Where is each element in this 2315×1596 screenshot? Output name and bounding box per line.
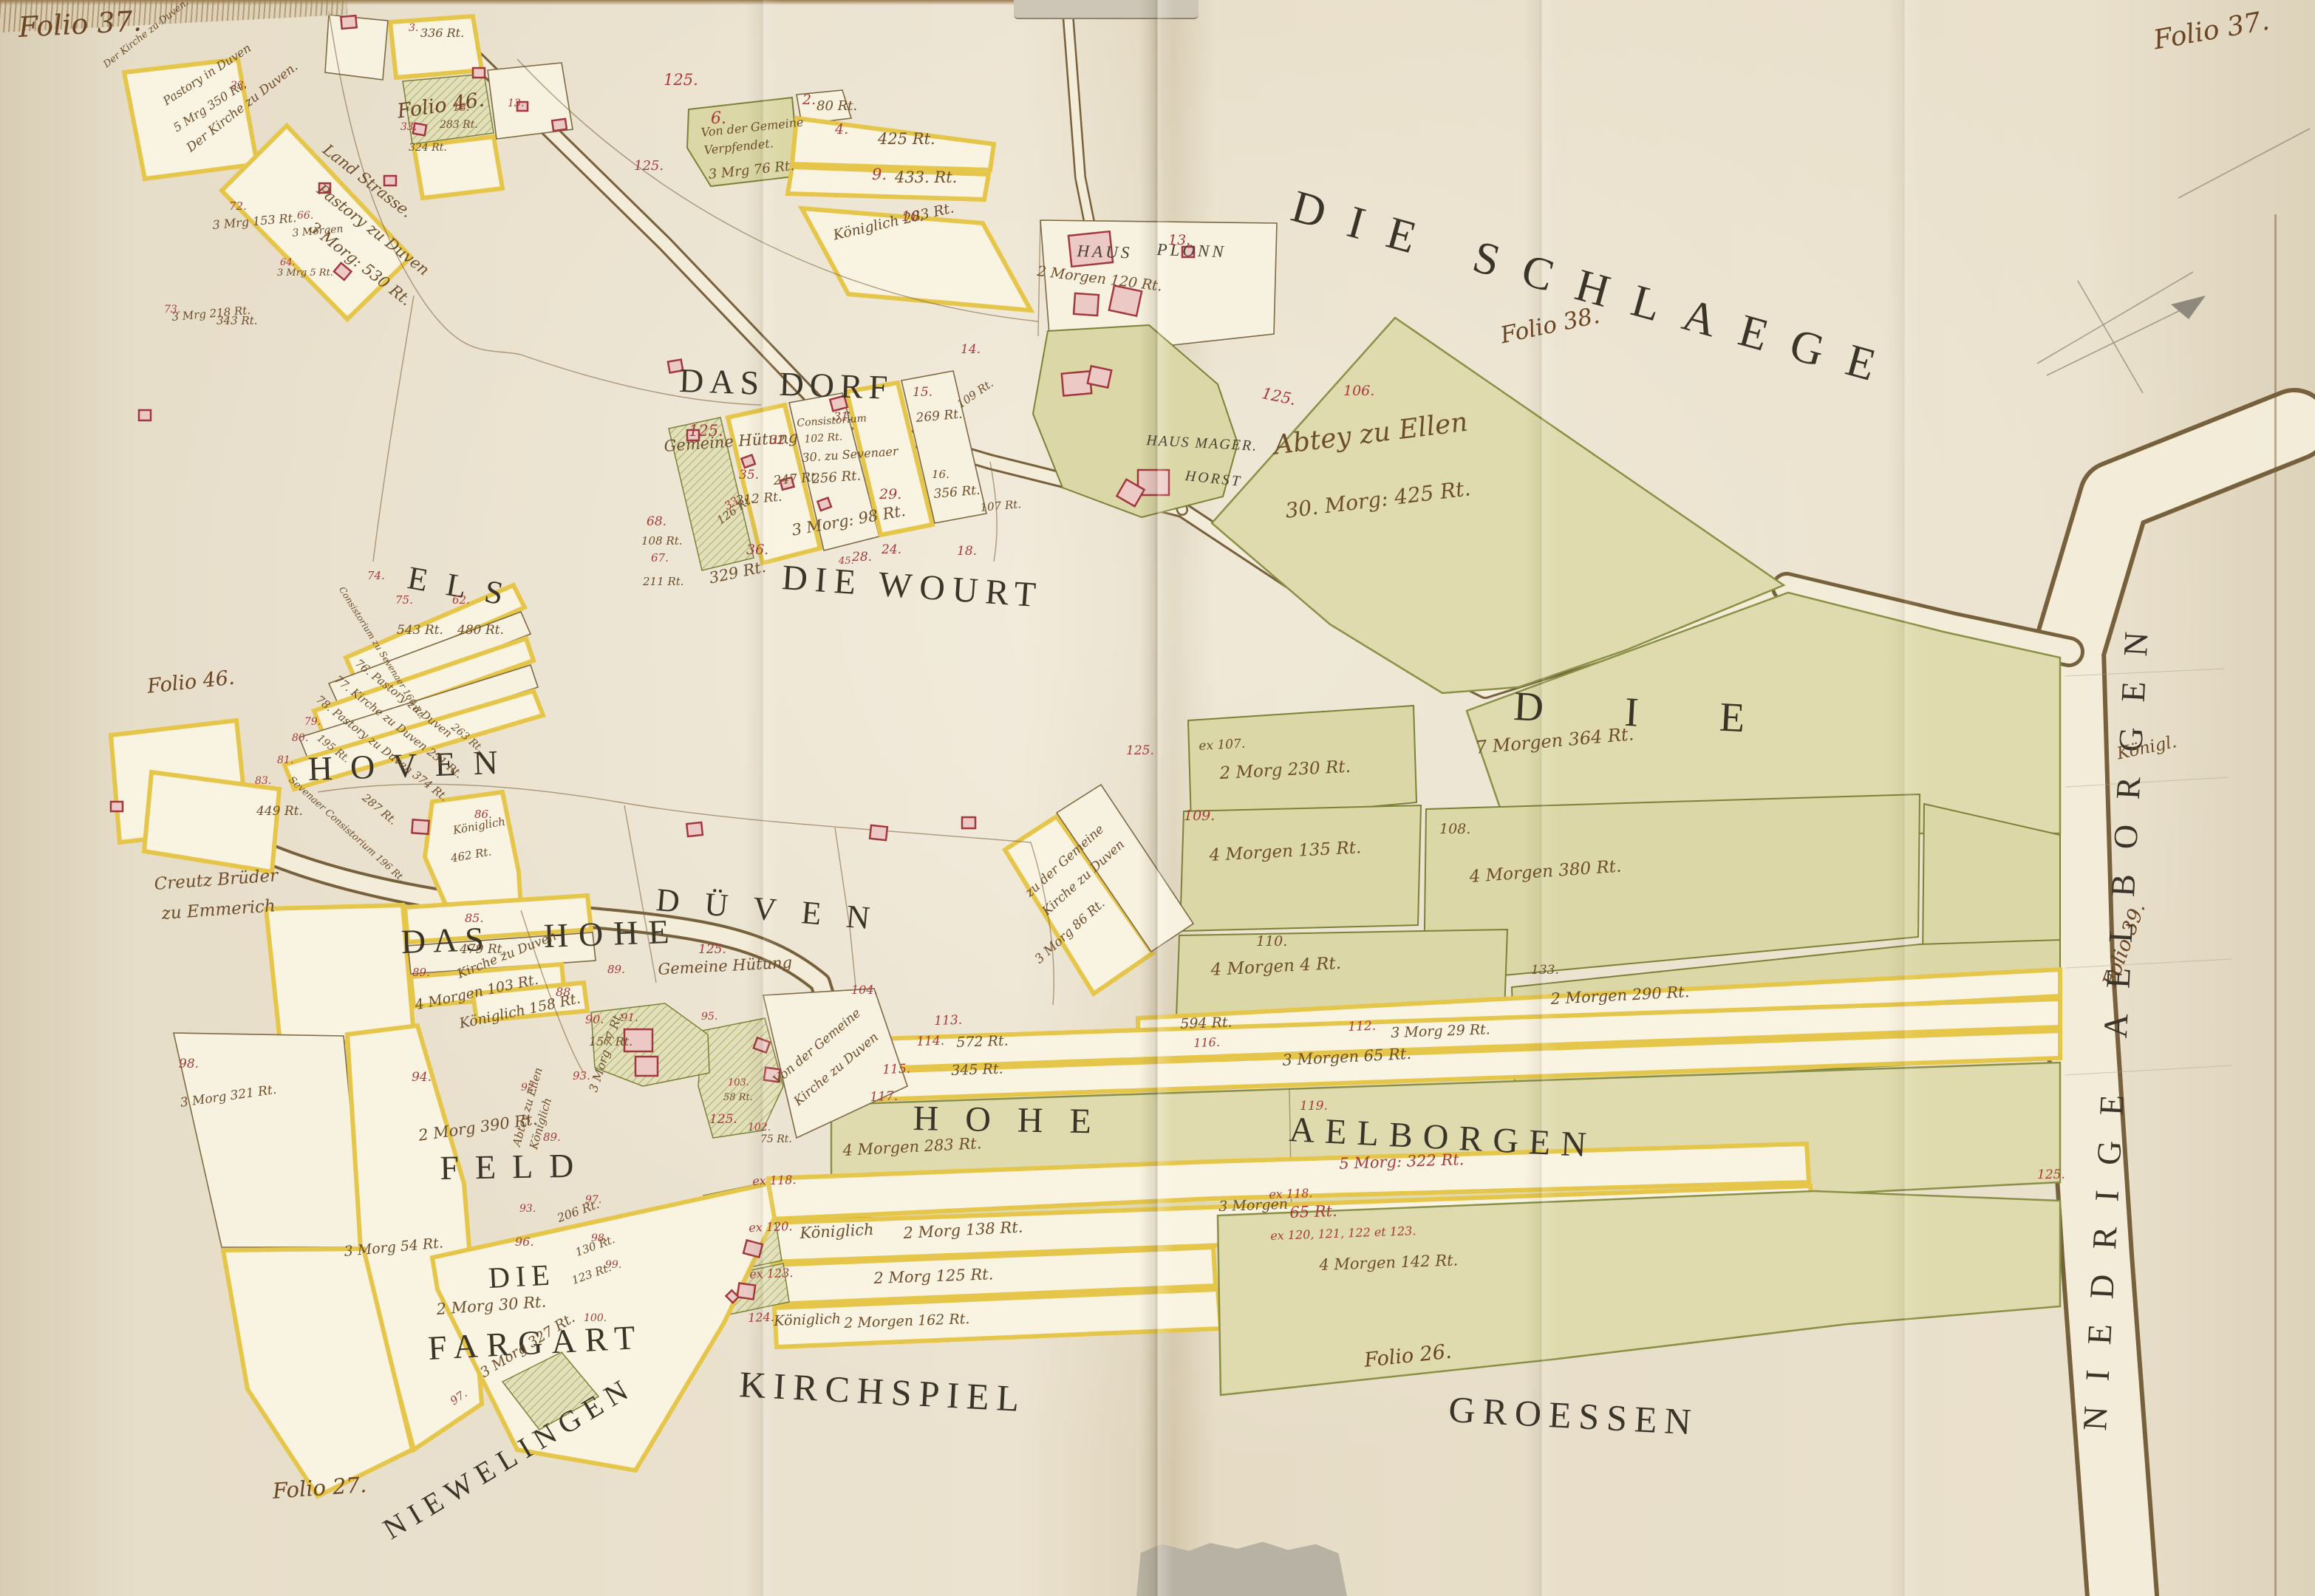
parcel-note: 32.	[769, 434, 789, 447]
parcel-note: 23.	[231, 81, 247, 91]
parcel-note: 211 Rt.	[643, 576, 684, 587]
parcel-note: 108 Rt.	[641, 536, 683, 547]
parcel-note: 81.	[277, 755, 293, 765]
parcel-note: 2 Morg 125 Rt.	[873, 1266, 994, 1286]
parcel-note: 2.	[802, 93, 816, 107]
parcel-note: 64.	[280, 258, 296, 267]
parcel-note: 35.	[739, 469, 759, 482]
parcel-note: 106.	[1343, 384, 1374, 398]
parcel-note: 98.	[591, 1233, 607, 1244]
fold-crease	[745, 0, 779, 1596]
parcel-note: ex 120.	[749, 1221, 793, 1234]
region-title-die-fargart: DIE	[488, 1260, 556, 1293]
parcel-note: 109.	[1184, 809, 1215, 823]
parcel-note: 100.	[584, 1313, 607, 1323]
parcel-note: 94.	[412, 1071, 432, 1084]
parcel-note: 110.	[1256, 935, 1287, 949]
folio-mark: Folio 27.	[272, 1474, 367, 1502]
cadastral-map-sheet: Folio 37. Folio 37. Folio 46. Folio 46. …	[0, 0, 2315, 1596]
parcel-note: 9.	[872, 167, 887, 183]
parcel-note: 133.	[1531, 964, 1559, 977]
page-right-edge	[2274, 214, 2277, 1596]
parcel-note: 65 Rt.	[1289, 1204, 1337, 1221]
parcel-note: 3.	[409, 23, 418, 33]
parcel-note: 18.	[957, 545, 977, 558]
parcel-note: 72.	[229, 201, 247, 212]
parcel-note: 3 Mrg 5 Rt.	[277, 268, 333, 278]
parcel-note: 102.	[748, 1122, 771, 1133]
parcel-note: 93.	[519, 1204, 536, 1214]
parcel-note: 93.	[573, 1071, 590, 1082]
parcel-note: 543 Rt.	[397, 624, 443, 637]
parcel-note: 97.	[585, 1195, 601, 1205]
parcel-note: 75 Rt.	[760, 1134, 792, 1145]
parcel-note: 66.	[297, 211, 313, 221]
parcel-note: 116.	[1193, 1037, 1220, 1049]
parcel-note: Königlich	[774, 1312, 841, 1329]
parcel-note: ex 123.	[749, 1267, 794, 1280]
parcel-note: 13.	[1168, 233, 1190, 248]
parcel-note: 102 Rt.	[804, 432, 843, 445]
parcel-note: 125.	[709, 1114, 737, 1126]
parcel-note: 103.	[728, 1078, 749, 1088]
parcel-note: 114.	[916, 1035, 944, 1048]
parcel-note: 13.	[508, 98, 524, 109]
parcel-note: 75.	[395, 595, 413, 606]
parcel-note: 449 Rt.	[256, 805, 303, 818]
parcel-note: 68.	[647, 516, 666, 528]
parcel-note: 62.	[452, 595, 470, 606]
parcel-note: 125.	[634, 160, 664, 173]
parcel-note: 480 Rt.	[457, 624, 504, 637]
parcel-note: 95.	[701, 1012, 717, 1022]
parcel-note: ex 118.	[752, 1174, 797, 1187]
parcel-note: 124.	[748, 1312, 774, 1324]
parcel-note: 89.	[543, 1132, 561, 1143]
parcel-note: 594 Rt.	[1180, 1016, 1232, 1031]
parcel-note: 58 Rt.	[723, 1093, 753, 1102]
parcel-note: 117.	[870, 1091, 898, 1104]
parcel-note: 83.	[255, 776, 271, 786]
parcel-note: 3 Morg 29 Rt.	[1391, 1023, 1490, 1040]
parcel-note: 336 Rt.	[420, 27, 464, 39]
sheet-top-edge	[0, 0, 1153, 5]
north-arrow-icon	[2037, 272, 2206, 393]
folio-mark: Folio 37.	[18, 7, 143, 41]
parcel-note: 16.	[932, 469, 949, 480]
parcel-note: 5 Morg: 322 Rt.	[1339, 1152, 1465, 1172]
fold-crease	[1524, 0, 1558, 1596]
parcel-note: 45.	[839, 556, 854, 566]
region-title-hohe-right: HOHE	[913, 1101, 1118, 1140]
parcel-note: 4.	[835, 123, 848, 137]
parcel-note: 15.	[913, 386, 933, 399]
region-title-feld: FELD	[440, 1148, 590, 1185]
parcel-note: 98.	[179, 1058, 199, 1071]
parcel-note: ex 107.	[1199, 738, 1246, 753]
parcel-note: 3 Morgen	[1218, 1198, 1288, 1214]
parcel-note: 80 Rt.	[816, 100, 857, 113]
parcel-note: 112.	[1348, 1020, 1376, 1034]
parcel-note: 125.	[698, 944, 726, 956]
parcel-note: 85.	[465, 913, 483, 924]
parcel-note: 125.	[2037, 1169, 2065, 1181]
parcel-note: 572 Rt.	[956, 1034, 1009, 1050]
parcel-note: 24.	[882, 544, 901, 556]
parcel-note: 125.	[664, 72, 698, 88]
parcel-note: 113.	[934, 1014, 962, 1028]
parcel-note: 29.	[879, 488, 901, 502]
parcel-note: 125.	[1126, 745, 1154, 757]
parcel-note: 89.	[607, 964, 625, 975]
parcel-note: 433. Rt.	[895, 170, 957, 185]
parcel-note: 343 Rt.	[217, 316, 258, 327]
parcel-note: 18.	[453, 103, 469, 113]
parcel-note: 90.	[585, 1014, 604, 1026]
region-title-hohe: HOHE	[543, 915, 680, 953]
parcel-note: 67.	[651, 553, 669, 564]
parcel-note: 119.	[1300, 1100, 1328, 1113]
parcel-note: 89.	[412, 967, 430, 978]
region-title-das-dorf: DAS DORF	[678, 364, 894, 405]
parcel-note: 36.	[746, 543, 768, 557]
parcel-note: 79.	[304, 717, 321, 727]
parcel-note: 14.	[961, 344, 981, 356]
parcel-note: 96.	[515, 1236, 533, 1248]
parcel-note: 104.	[851, 984, 878, 996]
parcel-note: 425 Rt.	[878, 132, 935, 147]
parcel-note: 80.	[292, 733, 308, 743]
parcel-note: 108.	[1439, 822, 1470, 836]
parcel-note: Königlich	[799, 1222, 874, 1241]
parcel-note: 345 Rt.	[951, 1063, 1003, 1078]
parcel-note: 33.	[400, 122, 417, 132]
parcel-note: 74.	[367, 570, 385, 582]
parcel-note: 324 Rt.	[409, 143, 447, 153]
parcel-note: 283 Rt.	[440, 120, 478, 130]
parcel-note: 115.	[882, 1063, 910, 1077]
parcel-note: 28.	[852, 551, 872, 564]
place-label-haus: HAUS	[1077, 242, 1133, 262]
place-label-plonn: PLONN	[1156, 241, 1227, 260]
fold-crease	[1886, 0, 1920, 1596]
